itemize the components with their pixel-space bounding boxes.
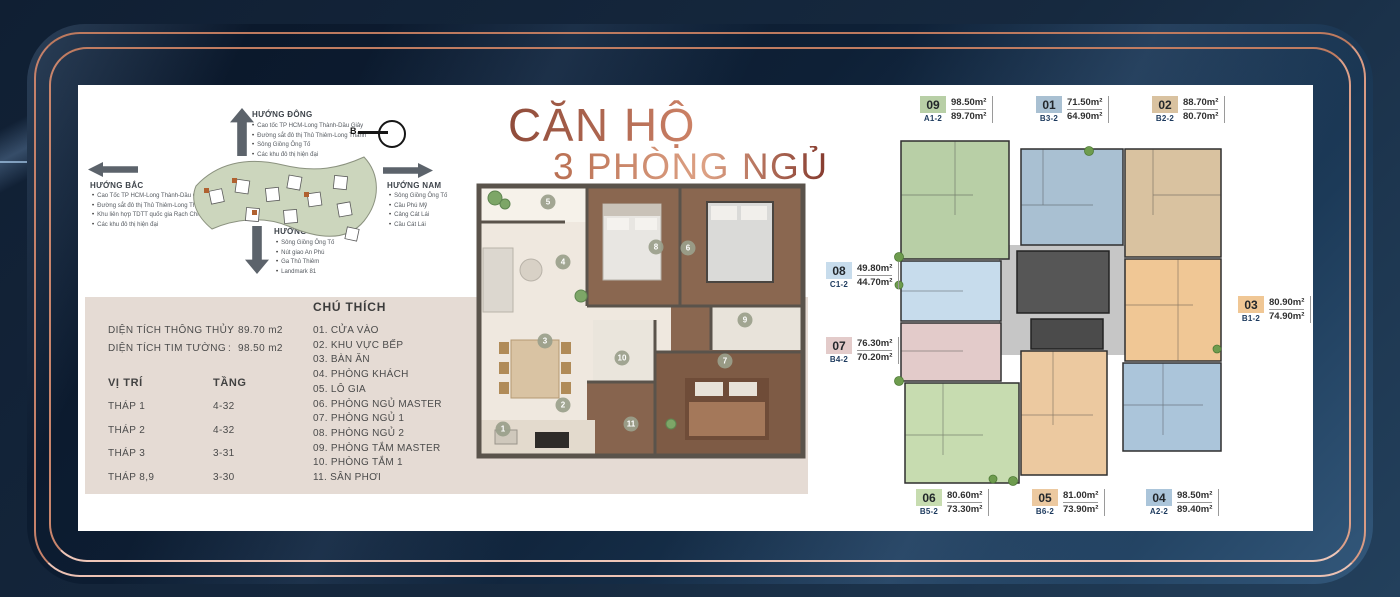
direction-item: Sông Giồng Ông Tố xyxy=(389,192,447,202)
unit-number: 06 xyxy=(922,491,935,505)
room-number: 10 xyxy=(618,354,627,363)
unit-code: B2-2 xyxy=(1156,114,1174,123)
tower-floors: 3-30 xyxy=(213,472,235,483)
unit-area-gross: 88.70m² xyxy=(1183,96,1218,110)
floor-header: TẦNG xyxy=(213,377,247,389)
room-number-marker: 11 xyxy=(624,417,639,432)
unit-label: 01 B3-2 71.50m² 64.90m² xyxy=(1036,96,1109,123)
tower-row: THÁP 8,9 3-30 xyxy=(108,472,235,483)
site-map xyxy=(188,148,386,250)
room-number: 4 xyxy=(561,258,565,267)
legend-item: 01. CỬA VÀO xyxy=(313,324,442,339)
unit-number: 04 xyxy=(1152,491,1165,505)
unit-code: B1-2 xyxy=(1242,314,1260,323)
spec-row: DIỆN TÍCH THÔNG THỦY : 89.70 m2 xyxy=(108,325,283,336)
unit-label: 03 B1-2 80.90m² 74.90m² xyxy=(1238,296,1311,323)
unit-area-net: 89.40m² xyxy=(1177,503,1212,516)
room-number-marker: 3 xyxy=(538,334,553,349)
legend-item: 09. PHÒNG TẮM MASTER xyxy=(313,442,442,457)
unit-number: 09 xyxy=(926,98,939,112)
unit-number-chip: 05 xyxy=(1032,489,1058,506)
tower-row: THÁP 2 4-32 xyxy=(108,425,235,436)
tower-name: THÁP 1 xyxy=(108,401,213,412)
unit-number: 02 xyxy=(1158,98,1171,112)
unit-area-net: 89.70m² xyxy=(951,110,986,123)
legend-item: 04. PHÒNG KHÁCH xyxy=(313,368,442,383)
unit-label: 09 A1-2 98.50m² 89.70m² xyxy=(920,96,993,123)
room-number-marker: 5 xyxy=(541,195,556,210)
floor-plate-drawing xyxy=(893,135,1223,488)
spec-label: DIỆN TÍCH TIM TƯỜNG xyxy=(108,343,228,354)
spec-colon: : xyxy=(228,325,238,336)
unit-area-gross: 49.80m² xyxy=(857,262,892,276)
location-table-header: VỊ TRÍ TẦNG xyxy=(108,377,143,389)
unit-number-chip: 03 xyxy=(1238,296,1264,313)
tower-name: THÁP 3 xyxy=(108,448,213,459)
unit-label: 02 B2-2 88.70m² 80.70m² xyxy=(1152,96,1225,123)
tower-floors: 4-32 xyxy=(213,425,235,436)
legend-item: 03. BÀN ĂN xyxy=(313,353,442,368)
unit-number-chip: 01 xyxy=(1036,96,1062,113)
spec-row: DIỆN TÍCH TIM TƯỜNG : 98.50 m2 xyxy=(108,343,283,354)
room-number-marker: 2 xyxy=(556,398,571,413)
spec-value: 89.70 m2 xyxy=(238,325,283,336)
unit-number: 05 xyxy=(1038,491,1051,505)
unit-label: 07 B4-2 76.30m² 70.20m² xyxy=(826,337,899,364)
apartment-floor-plan: 5 4 8 6 3 9 xyxy=(475,170,807,460)
room-number-marker: 7 xyxy=(718,354,733,369)
unit-number: 08 xyxy=(832,264,845,278)
legend-title: CHÚ THÍCH xyxy=(313,300,442,314)
unit-number-chip: 02 xyxy=(1152,96,1178,113)
unit-area-gross: 80.60m² xyxy=(947,489,982,503)
unit-number-chip: 07 xyxy=(826,337,852,354)
direction-item: Cầu Cát Lái xyxy=(389,221,447,231)
legend-item: 10. PHÒNG TẮM 1 xyxy=(313,456,442,471)
area-spec-table: DIỆN TÍCH THÔNG THỦY : 89.70 m2 DIỆN TÍC… xyxy=(108,325,283,361)
room-number: 1 xyxy=(501,425,505,434)
unit-area-net: 80.70m² xyxy=(1183,110,1218,123)
unit-number-chip: 08 xyxy=(826,262,852,279)
room-number: 11 xyxy=(627,420,635,429)
room-number: 5 xyxy=(546,198,550,207)
room-number-marker: 10 xyxy=(615,351,630,366)
direction-south-label: HƯỚNG NAM xyxy=(387,181,441,190)
unit-code: C1-2 xyxy=(830,280,848,289)
direction-north-label: HƯỚNG BẮC xyxy=(90,181,144,190)
tower-floors: 3-31 xyxy=(213,448,235,459)
legend-item: 05. LÔ GIA xyxy=(313,383,442,398)
tower-name: THÁP 8,9 xyxy=(108,472,213,483)
room-number: 9 xyxy=(743,316,747,325)
tower-name: THÁP 2 xyxy=(108,425,213,436)
room-number: 6 xyxy=(686,244,690,253)
legend: CHÚ THÍCH 01. CỬA VÀO02. KHU VỰC BẾP03. … xyxy=(313,300,442,486)
unit-number-chip: 09 xyxy=(920,96,946,113)
unit-area-gross: 71.50m² xyxy=(1067,96,1102,110)
direction-item: Cầu Phú Mỹ xyxy=(389,202,447,212)
compass-north-icon: B xyxy=(352,118,412,148)
apartment-plan-drawing xyxy=(475,170,807,460)
room-number-marker: 9 xyxy=(738,313,753,328)
legend-item: 07. PHÒNG NGỦ 1 xyxy=(313,412,442,427)
unit-code: B4-2 xyxy=(830,355,848,364)
unit-code: A1-2 xyxy=(924,114,942,123)
page-title-line1: CĂN HỘ xyxy=(508,98,696,152)
unit-number: 03 xyxy=(1244,298,1257,312)
unit-number: 07 xyxy=(832,339,845,353)
tower-floors: 4-32 xyxy=(213,401,235,412)
unit-area-gross: 76.30m² xyxy=(857,337,892,351)
unit-label: 08 C1-2 49.80m² 44.70m² xyxy=(826,262,899,289)
unit-label: 05 B6-2 81.00m² 73.90m² xyxy=(1032,489,1105,516)
tower-row: THÁP 1 4-32 xyxy=(108,401,235,412)
unit-number-chip: 04 xyxy=(1146,489,1172,506)
room-number-marker: 8 xyxy=(649,240,664,255)
compass-north-letter: B xyxy=(350,126,357,136)
spec-label: DIỆN TÍCH THÔNG THỦY xyxy=(108,325,228,336)
unit-area-net: 73.90m² xyxy=(1063,503,1098,516)
legend-item: 08. PHÒNG NGỦ 2 xyxy=(313,427,442,442)
spec-value: 98.50 m2 xyxy=(238,343,283,354)
direction-item: Ga Thủ Thiêm xyxy=(276,258,334,268)
floor-plate-plan xyxy=(893,135,1223,488)
room-number-marker: 4 xyxy=(556,255,571,270)
tower-table: THÁP 1 4-32 THÁP 2 4-32 THÁP 3 3-31 THÁP… xyxy=(108,401,235,495)
unit-area-gross: 98.50m² xyxy=(951,96,986,110)
legend-item: 02. KHU VỰC BẾP xyxy=(313,339,442,354)
room-number: 7 xyxy=(723,357,727,366)
direction-south-list: Sông Giồng Ông TốCầu Phú MỹCảng Cát LáiC… xyxy=(389,192,447,230)
brochure-page: HƯỚNG ĐÔNG Cao tốc TP HCM-Long Thành-Dầu… xyxy=(0,0,1400,597)
position-header: VỊ TRÍ xyxy=(108,377,143,389)
spec-colon: : xyxy=(228,343,238,354)
room-number: 2 xyxy=(561,401,565,410)
unit-area-net: 64.90m² xyxy=(1067,110,1102,123)
unit-area-net: 74.90m² xyxy=(1269,310,1304,323)
unit-number-chip: 06 xyxy=(916,489,942,506)
unit-area-gross: 98.50m² xyxy=(1177,489,1212,503)
unit-code: B5-2 xyxy=(920,507,938,516)
unit-area-gross: 80.90m² xyxy=(1269,296,1304,310)
legend-item: 06. PHÒNG NGỦ MASTER xyxy=(313,398,442,413)
unit-area-net: 70.20m² xyxy=(857,351,892,364)
room-number: 3 xyxy=(543,337,547,346)
unit-code: B3-2 xyxy=(1040,114,1058,123)
unit-label: 06 B5-2 80.60m² 73.30m² xyxy=(916,489,989,516)
legend-item: 11. SÂN PHƠI xyxy=(313,471,442,486)
tower-row: THÁP 3 3-31 xyxy=(108,448,235,459)
room-number: 8 xyxy=(654,243,658,252)
unit-area-net: 73.30m² xyxy=(947,503,982,516)
unit-label: 04 A2-2 98.50m² 89.40m² xyxy=(1146,489,1219,516)
room-number-marker: 1 xyxy=(496,422,511,437)
direction-east-label: HƯỚNG ĐÔNG xyxy=(252,110,312,119)
room-number-marker: 6 xyxy=(681,241,696,256)
unit-area-gross: 81.00m² xyxy=(1063,489,1098,503)
direction-item: Landmark 81 xyxy=(276,268,334,278)
unit-area-net: 44.70m² xyxy=(857,276,892,289)
direction-item: Cảng Cát Lái xyxy=(389,211,447,221)
legend-list: 01. CỬA VÀO02. KHU VỰC BẾP03. BÀN ĂN04. … xyxy=(313,324,442,486)
unit-code: B6-2 xyxy=(1036,507,1054,516)
unit-number: 01 xyxy=(1042,98,1055,112)
unit-code: A2-2 xyxy=(1150,507,1168,516)
